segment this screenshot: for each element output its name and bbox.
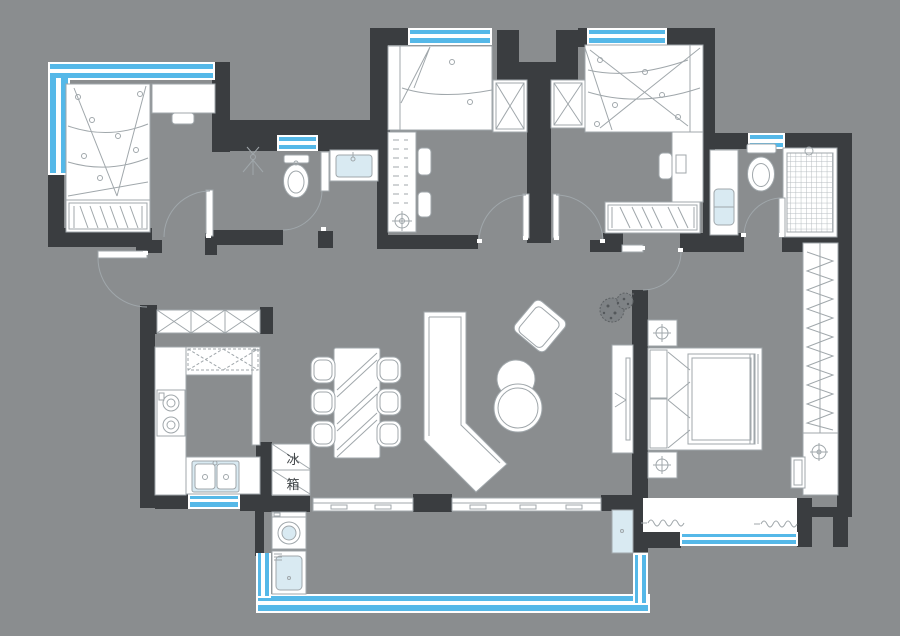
window-bedroom3-top <box>587 28 667 45</box>
drying-rack <box>803 243 838 433</box>
tv-cabinet-icon <box>612 345 633 453</box>
floor-drain-box <box>803 433 838 495</box>
window-balcony-bottom <box>256 594 650 613</box>
nightstand-top <box>648 320 677 346</box>
wardrobe-bedroom3 <box>605 202 700 233</box>
door-master-bedroom <box>622 245 683 290</box>
kitchen-sink-icon <box>192 461 239 492</box>
shower-sprinkler-icon <box>243 147 263 175</box>
stool <box>791 457 805 488</box>
bed-bedroom1 <box>66 84 150 200</box>
toilet-bathroom1-icon <box>284 155 310 198</box>
washbasin-bathroom2-icon <box>710 150 738 235</box>
bay-window-sill <box>641 498 797 532</box>
chairs-bedroom2 <box>418 148 431 217</box>
coffee-tables <box>494 360 542 432</box>
desk-bedroom1 <box>152 84 215 124</box>
desk-bedroom3 <box>659 132 703 202</box>
shoe-cabinet <box>157 310 260 333</box>
wardrobe-bedroom3-left <box>551 80 585 128</box>
washing-machine-icon <box>272 512 306 549</box>
door-bedroom2 <box>477 194 529 243</box>
dining-table <box>334 348 380 458</box>
mop-sink-icon <box>272 551 306 594</box>
window-bathroom1 <box>277 135 318 151</box>
bed-bedroom2 <box>388 46 492 130</box>
window-kitchen <box>188 494 240 509</box>
shower-area <box>783 147 837 237</box>
fridge-label-top: 冰 <box>286 453 299 468</box>
door-bathroom2 <box>741 198 785 237</box>
window-master-bottom <box>680 532 798 546</box>
refrigerator-icon: 冰 箱 <box>272 444 310 495</box>
door-bedroom1 <box>164 190 213 238</box>
washbasin-bathroom1-icon <box>330 150 378 181</box>
door-bedroom3 <box>553 194 605 243</box>
toilet-bathroom2-icon <box>747 144 776 191</box>
sliding-door-track-left <box>313 498 413 511</box>
glass-panel <box>612 510 633 553</box>
window-balcony-left <box>256 553 271 598</box>
bed-master <box>648 348 762 450</box>
sliding-door-track-right <box>452 498 601 511</box>
fridge-label-bottom: 箱 <box>286 477 299 493</box>
desk-bedroom2 <box>388 132 416 232</box>
floorplan-svg: 冰 箱 <box>0 0 900 636</box>
nightstand-bottom <box>648 452 677 478</box>
bed-bedroom3 <box>585 45 703 132</box>
wardrobe-bedroom1 <box>66 200 150 232</box>
potted-plant-icon <box>600 293 634 322</box>
gas-stove-icon <box>157 390 185 436</box>
window-bedroom1-top <box>48 62 215 80</box>
window-balcony-right <box>633 553 648 605</box>
entry-door <box>98 251 148 307</box>
window-bedroom2-top <box>408 28 492 45</box>
armchair <box>512 298 568 354</box>
floorplan: 冰 箱 <box>0 0 900 636</box>
wardrobe-bedroom2 <box>493 80 527 132</box>
